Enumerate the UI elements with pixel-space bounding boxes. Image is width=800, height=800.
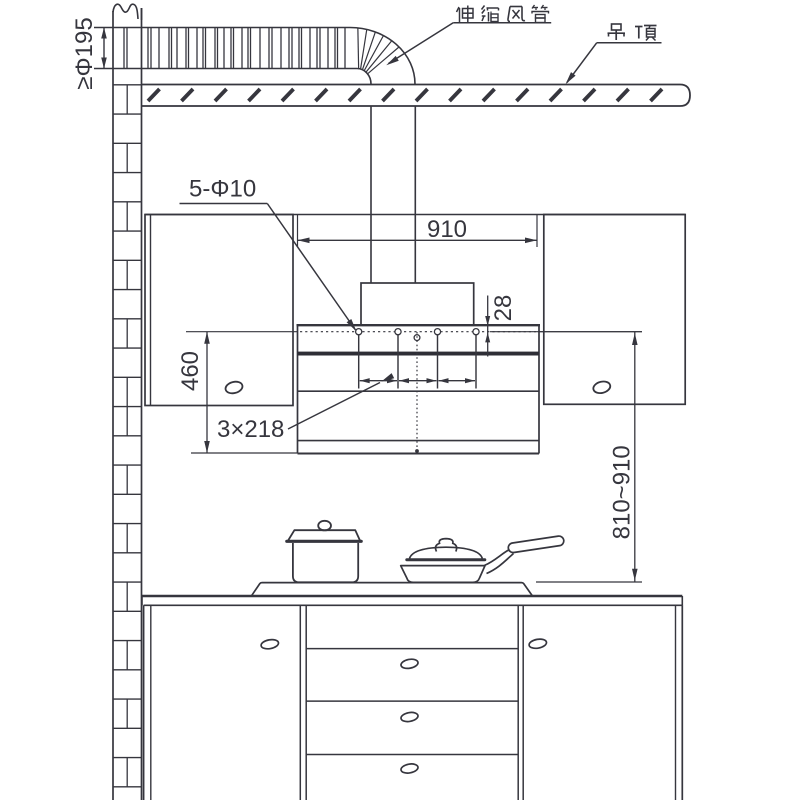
svg-text:3×218: 3×218 — [217, 416, 284, 443]
svg-text:28: 28 — [490, 295, 517, 322]
svg-text:≥Φ195: ≥Φ195 — [71, 17, 98, 89]
svg-text:5-Φ10: 5-Φ10 — [189, 176, 256, 203]
svg-text:910: 910 — [427, 216, 467, 243]
svg-text:460: 460 — [177, 351, 204, 391]
svg-text:810~910: 810~910 — [609, 445, 636, 539]
